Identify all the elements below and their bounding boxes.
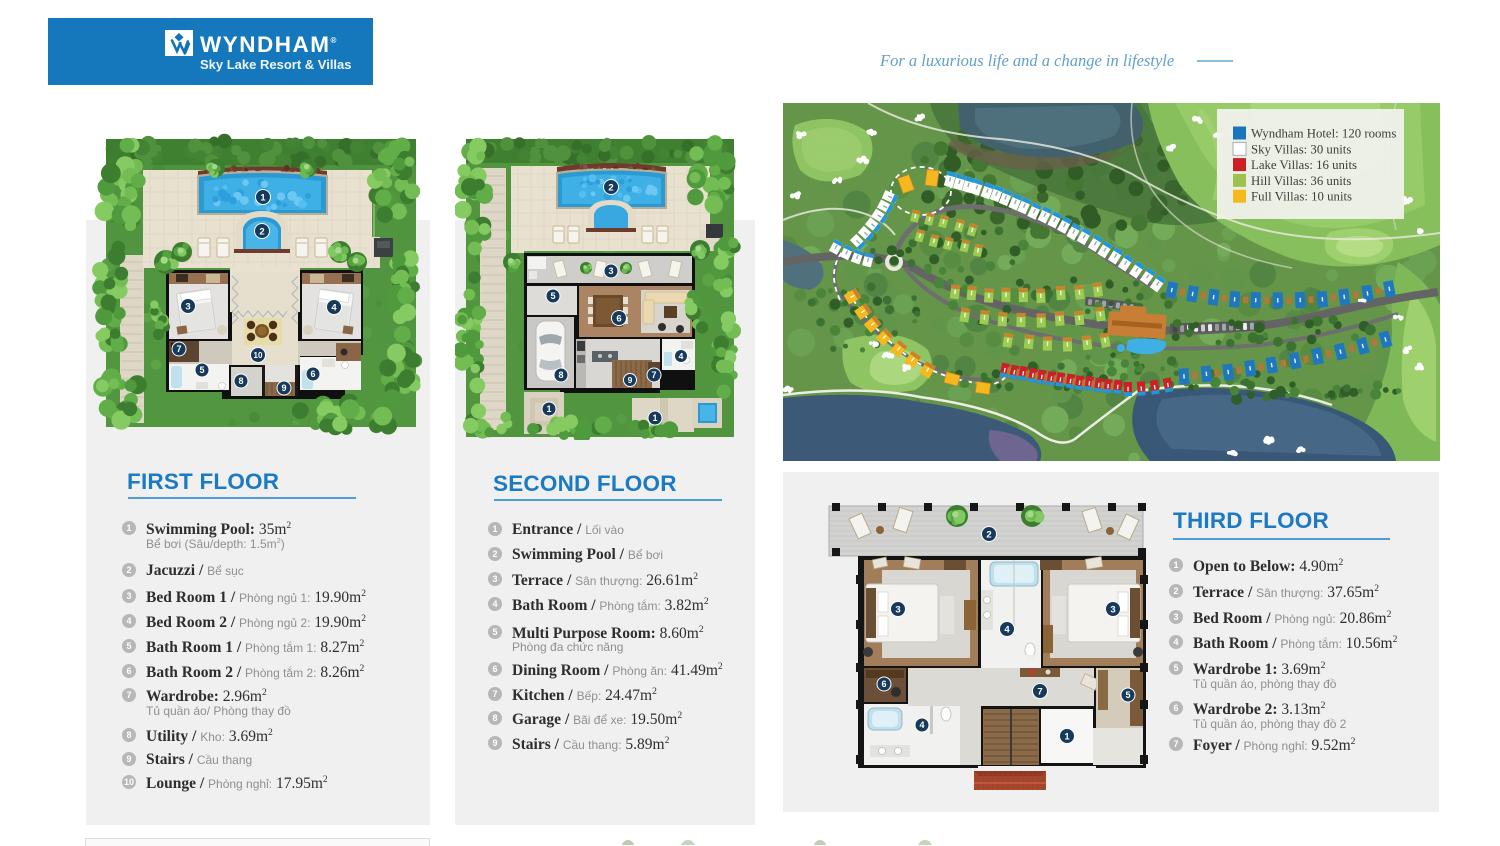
- svg-text:5: 5: [199, 365, 204, 375]
- svg-text:6: 6: [616, 313, 621, 324]
- svg-text:2: 2: [608, 182, 613, 193]
- svg-text:7: 7: [176, 344, 181, 354]
- svg-text:7: 7: [651, 370, 656, 380]
- svg-text:1: 1: [652, 413, 657, 423]
- svg-text:1: 1: [1064, 731, 1070, 742]
- svg-text:Lake Villas: 16 units: Lake Villas: 16 units: [1251, 158, 1357, 172]
- svg-text:4: 4: [919, 720, 924, 730]
- svg-text:3: 3: [185, 301, 190, 312]
- svg-text:4: 4: [331, 302, 337, 313]
- svg-text:5: 5: [550, 291, 555, 301]
- svg-text:Wyndham Hotel: 120 rooms: Wyndham Hotel: 120 rooms: [1251, 127, 1396, 141]
- svg-text:9: 9: [628, 375, 633, 385]
- svg-text:4: 4: [679, 351, 684, 361]
- svg-text:Sky Villas: 30 units: Sky Villas: 30 units: [1251, 142, 1351, 156]
- svg-text:Full Villas: 10 units: Full Villas: 10 units: [1251, 190, 1352, 204]
- svg-text:2: 2: [986, 529, 991, 540]
- svg-text:3: 3: [608, 266, 613, 276]
- svg-text:4: 4: [1004, 624, 1010, 635]
- svg-text:8: 8: [238, 376, 243, 386]
- svg-text:5: 5: [1125, 690, 1130, 700]
- svg-text:2: 2: [259, 226, 264, 237]
- svg-text:7: 7: [1037, 686, 1042, 697]
- svg-text:Hill Villas: 36 units: Hill Villas: 36 units: [1251, 174, 1351, 188]
- svg-text:8: 8: [558, 370, 563, 380]
- svg-text:6: 6: [881, 679, 886, 689]
- svg-text:10: 10: [254, 351, 263, 360]
- svg-text:1: 1: [546, 404, 551, 414]
- svg-text:3: 3: [1110, 604, 1115, 615]
- svg-text:3: 3: [895, 604, 900, 615]
- svg-text:9: 9: [281, 383, 286, 393]
- svg-text:1: 1: [260, 192, 266, 203]
- svg-text:6: 6: [310, 369, 315, 379]
